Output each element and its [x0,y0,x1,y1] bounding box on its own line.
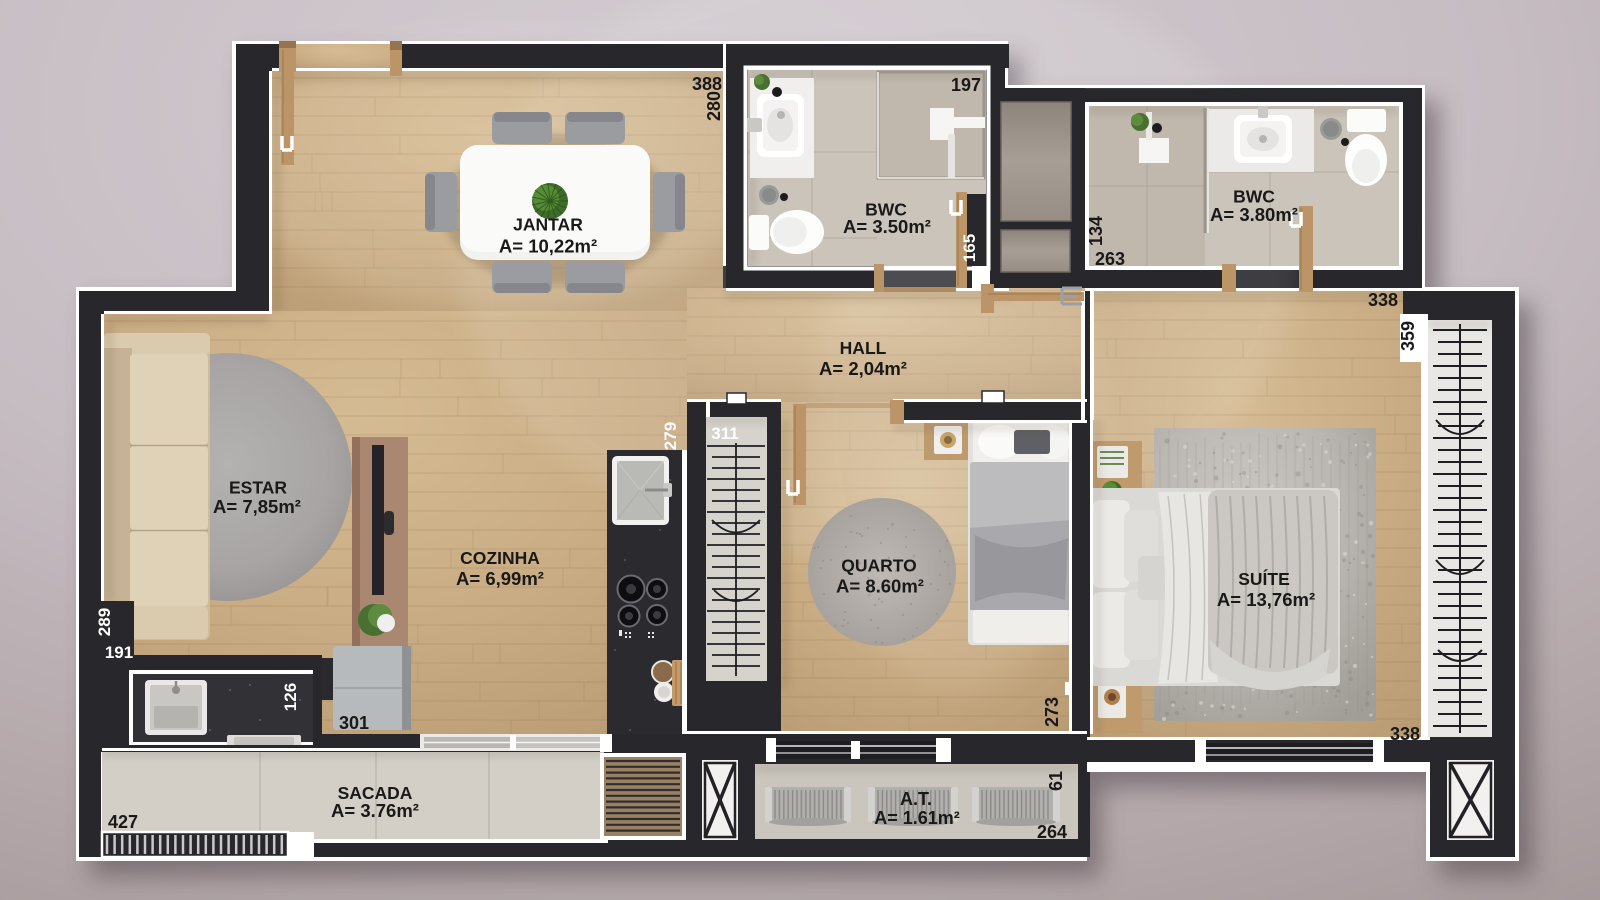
svg-text:A= 8.60m²: A= 8.60m² [836,576,924,597]
svg-text:A= 3.76m²: A= 3.76m² [331,800,419,821]
svg-text:A.T.: A.T. [900,789,932,809]
svg-text:273: 273 [1042,697,1062,727]
svg-text:A= 3.80m²: A= 3.80m² [1210,204,1298,225]
svg-text:301: 301 [339,713,369,733]
svg-text:JANTAR: JANTAR [513,215,583,235]
svg-text:A= 10,22m²: A= 10,22m² [499,236,597,257]
svg-text:COZINHA: COZINHA [460,548,540,568]
svg-text:359: 359 [1398,321,1418,351]
svg-text:311: 311 [711,424,738,443]
svg-text:126: 126 [281,683,300,711]
svg-text:279: 279 [661,422,680,450]
svg-text:61: 61 [1046,771,1066,791]
svg-text:A= 6,99m²: A= 6,99m² [456,568,544,589]
svg-text:A= 3.50m²: A= 3.50m² [843,216,931,237]
svg-text:HALL: HALL [840,338,887,358]
svg-text:280: 280 [704,91,724,121]
svg-text:191: 191 [105,643,133,662]
svg-text:A= 2,04m²: A= 2,04m² [819,358,907,379]
svg-text:SUÍTE: SUÍTE [1238,568,1290,589]
svg-text:A= 7,85m²: A= 7,85m² [213,496,301,517]
svg-text:ESTAR: ESTAR [229,478,287,498]
svg-text:QUARTO: QUARTO [841,556,917,576]
svg-text:338: 338 [1368,290,1398,310]
svg-text:165: 165 [960,234,979,262]
svg-text:197: 197 [951,75,981,95]
svg-text:338: 338 [1390,724,1420,744]
svg-text:263: 263 [1095,249,1125,269]
svg-text:427: 427 [108,812,138,832]
svg-text:134: 134 [1086,216,1106,246]
svg-text:A= 1.61m²: A= 1.61m² [874,808,960,828]
svg-text:264: 264 [1037,822,1067,842]
svg-text:A= 13,76m²: A= 13,76m² [1217,589,1315,610]
svg-text:289: 289 [95,608,114,636]
